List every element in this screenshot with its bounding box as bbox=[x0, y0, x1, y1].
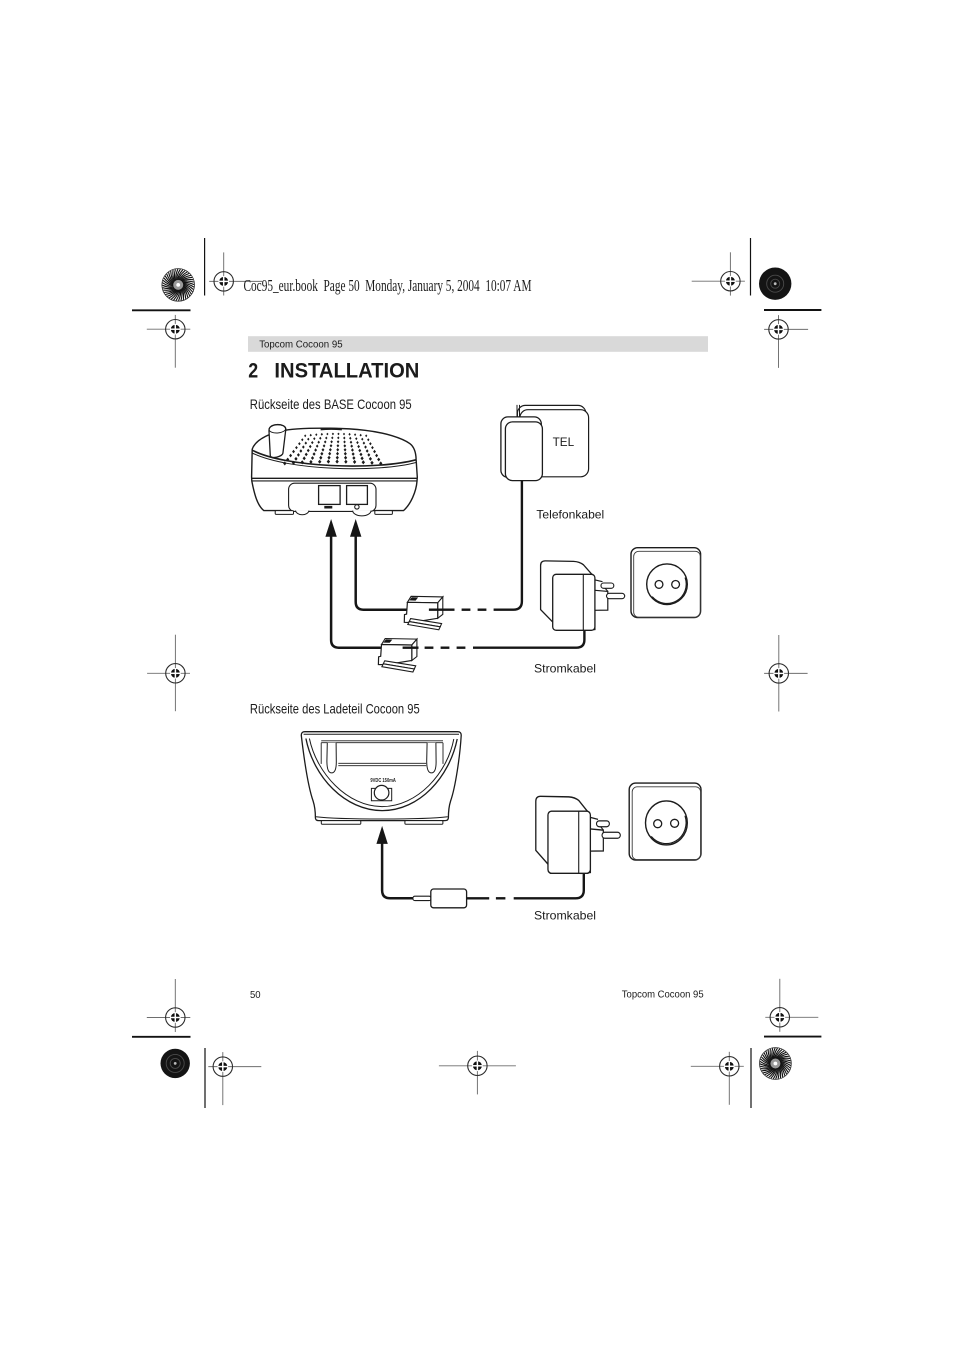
svg-text:Stromkabel: Stromkabel bbox=[534, 910, 596, 923]
svg-text:Telefonkabel: Telefonkabel bbox=[536, 508, 604, 521]
svg-text:TEL: TEL bbox=[553, 437, 575, 449]
svg-text:Stromkabel: Stromkabel bbox=[534, 663, 596, 676]
svg-text:Rückseite des BASE Cocoon 95: Rückseite des BASE Cocoon 95 bbox=[250, 396, 412, 412]
svg-text:Rückseite des Ladeteil Cocoon: Rückseite des Ladeteil Cocoon 95 bbox=[250, 701, 420, 717]
svg-text:50: 50 bbox=[250, 990, 261, 1001]
svg-text:INSTALLATION: INSTALLATION bbox=[274, 359, 419, 382]
svg-text:2: 2 bbox=[248, 359, 258, 382]
svg-text:Topcom Cocoon 95: Topcom Cocoon 95 bbox=[259, 340, 343, 351]
svg-text:9VDC 150mA: 9VDC 150mA bbox=[370, 778, 396, 784]
svg-text:Coc95_eur.book Page 50 Monda: Coc95_eur.book Page 50 Monday, January 5… bbox=[244, 276, 532, 295]
svg-text:Topcom Cocoon 95: Topcom Cocoon 95 bbox=[622, 990, 704, 1001]
